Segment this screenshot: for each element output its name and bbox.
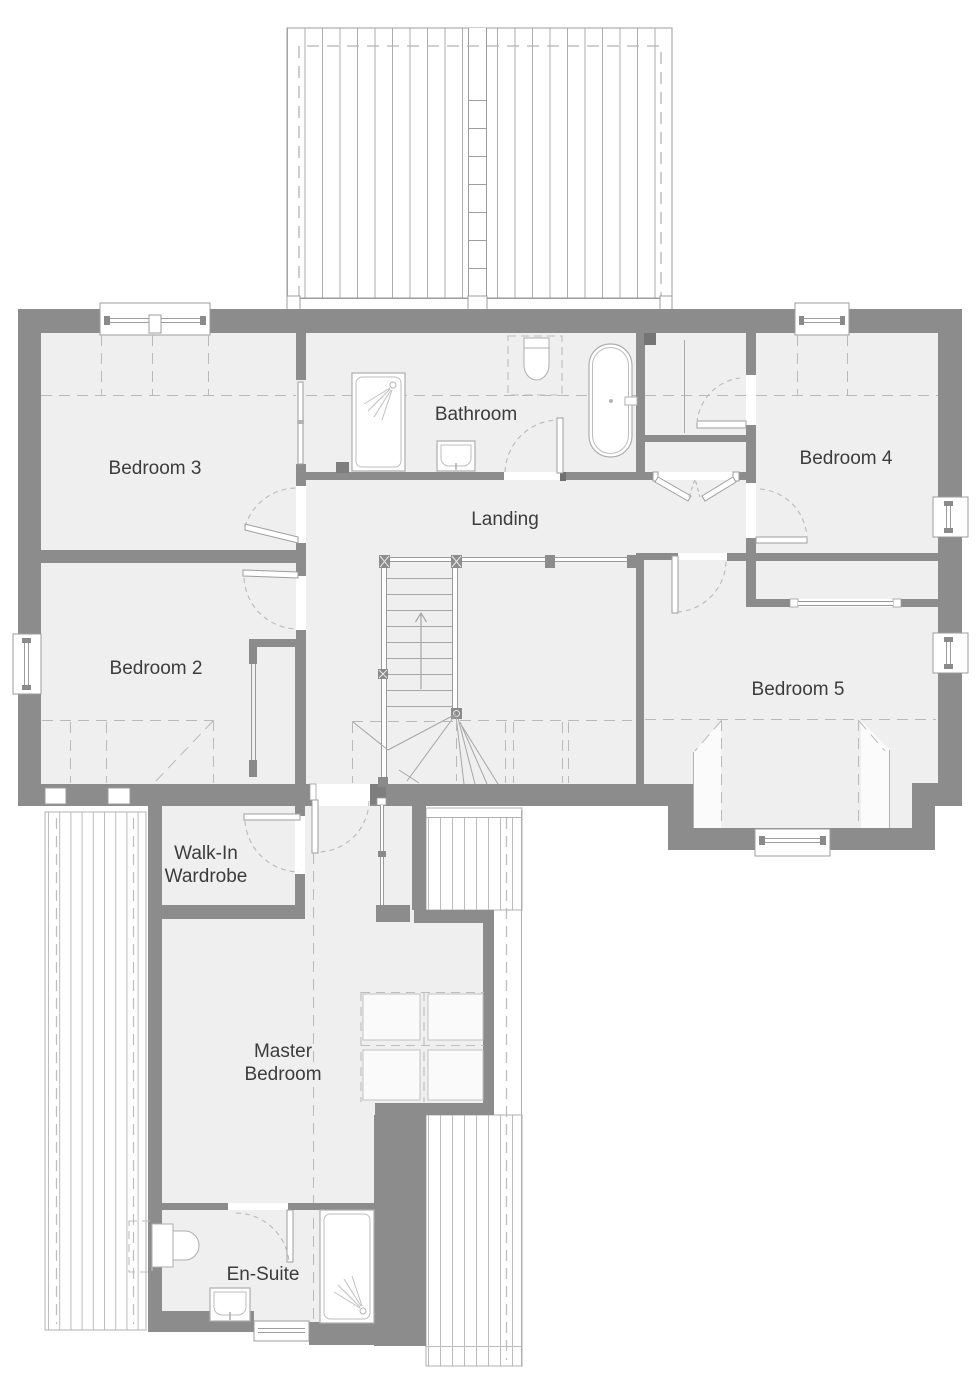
svg-text:En-Suite: En-Suite: [227, 1264, 300, 1285]
svg-text:Bedroom 2: Bedroom 2: [110, 658, 203, 679]
svg-text:Master: Master: [254, 1041, 313, 1062]
svg-text:Wardrobe: Wardrobe: [165, 866, 248, 887]
svg-text:Bedroom 4: Bedroom 4: [800, 448, 893, 469]
svg-text:Bedroom 3: Bedroom 3: [109, 458, 202, 479]
svg-text:Bedroom 5: Bedroom 5: [752, 679, 845, 700]
svg-text:Walk-In: Walk-In: [174, 843, 238, 864]
svg-text:Landing: Landing: [471, 509, 539, 530]
svg-text:Bedroom: Bedroom: [244, 1064, 321, 1085]
svg-text:Bathroom: Bathroom: [435, 404, 517, 425]
